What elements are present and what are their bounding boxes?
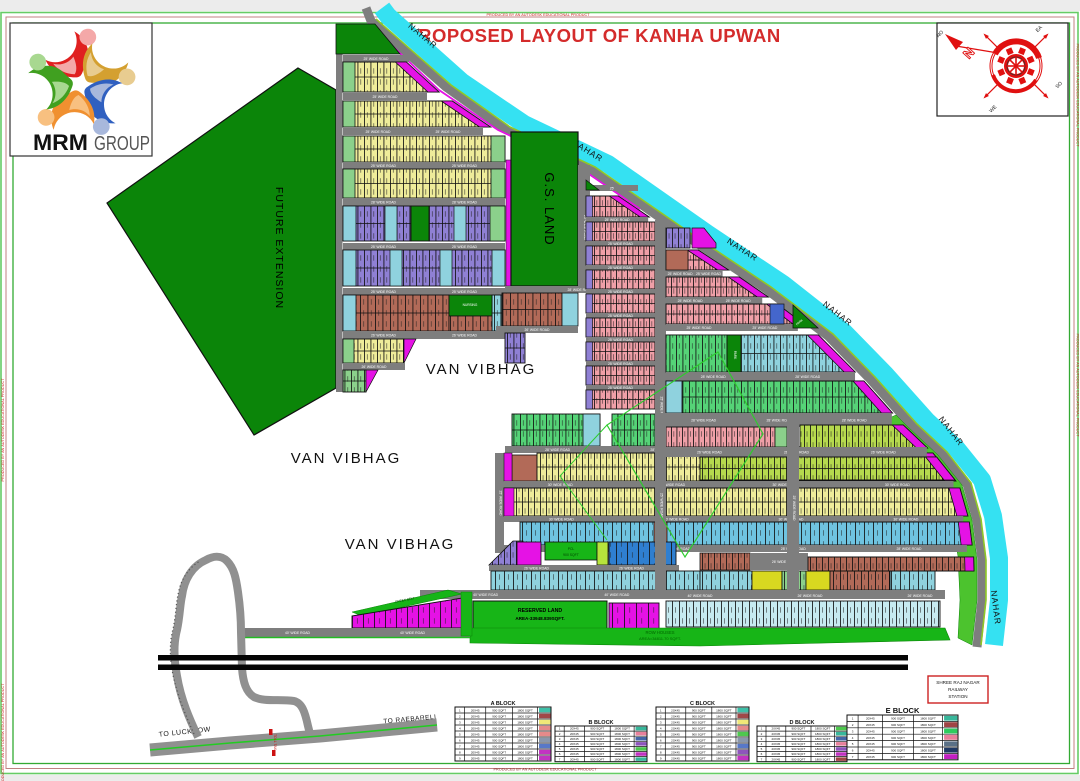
svg-text:1800 SQFT: 1800 SQFT [716, 732, 732, 736]
svg-text:26' WIDE: 26' WIDE [772, 560, 787, 564]
svg-text:VAN VIBHAG: VAN VIBHAG [291, 450, 402, 467]
svg-text:1800 SQFT: 1800 SQFT [614, 747, 630, 751]
svg-text:G.S. LAND: G.S. LAND [542, 172, 557, 245]
svg-text:900 SQFT: 900 SQFT [492, 756, 506, 760]
svg-text:PRODUCED BY AN AUTODESK EDUCAT: PRODUCED BY AN AUTODESK EDUCATIONAL PROD… [1076, 43, 1080, 147]
svg-text:20X45: 20X45 [570, 727, 579, 731]
svg-text:20X45: 20X45 [772, 732, 781, 736]
svg-text:1800 SQFT: 1800 SQFT [815, 747, 831, 751]
svg-text:1800 SQFT: 1800 SQFT [815, 757, 831, 761]
svg-text:25' WIDE ROAD: 25' WIDE ROAD [452, 245, 478, 249]
svg-text:20X45: 20X45 [866, 749, 875, 753]
svg-text:26' WIDE ROAD: 26' WIDE ROAD [371, 333, 397, 337]
svg-text:1800 SQFT: 1800 SQFT [815, 752, 831, 756]
svg-text:25' WIDE ROAD: 25' WIDE ROAD [696, 272, 722, 276]
svg-text:20X45: 20X45 [772, 727, 781, 731]
svg-text:900 SQFT: 900 SQFT [791, 747, 805, 751]
svg-text:20X45: 20X45 [570, 747, 579, 751]
svg-text:900 SQFT: 900 SQFT [791, 727, 805, 731]
svg-text:900 SQFT: 900 SQFT [590, 752, 604, 756]
svg-text:900 SQFT: 900 SQFT [590, 732, 604, 736]
svg-text:1800 SQFT: 1800 SQFT [517, 714, 533, 718]
svg-text:PRODUCED BY AN AUTODESK EDUCAT: PRODUCED BY AN AUTODESK EDUCATIONAL PROD… [1076, 333, 1080, 437]
svg-text:PARK: PARK [733, 351, 737, 360]
svg-text:20X45: 20X45 [471, 714, 480, 718]
svg-text:25' WIDE ROAD: 25' WIDE ROAD [605, 218, 631, 222]
svg-text:1800 SQFT: 1800 SQFT [614, 737, 630, 741]
svg-text:900 SQFT: 900 SQFT [891, 723, 905, 727]
svg-text:40' WIDE ROAD: 40' WIDE ROAD [688, 594, 714, 598]
svg-text:1800 SQFT: 1800 SQFT [614, 727, 630, 731]
svg-text:SHREE RAJ NAGAR: SHREE RAJ NAGAR [936, 680, 980, 685]
svg-text:E BLOCK: E BLOCK [886, 706, 920, 715]
svg-text:25' WIDE ROAD: 25' WIDE ROAD [452, 290, 478, 294]
svg-text:26' WIDE ROAD: 26' WIDE ROAD [908, 594, 934, 598]
svg-text:25' WIDE ROAD: 25' WIDE ROAD [752, 326, 778, 330]
svg-text:A BLOCK: A BLOCK [491, 701, 516, 707]
svg-text:20X45: 20X45 [671, 714, 680, 718]
svg-text:25' WIDE ROAD: 25' WIDE ROAD [608, 338, 634, 342]
svg-text:20X45: 20X45 [772, 757, 781, 761]
svg-text:20X45: 20X45 [772, 737, 781, 741]
svg-text:900 SQFT: 900 SQFT [492, 714, 506, 718]
svg-text:25' WIDE ROAD: 25' WIDE ROAD [608, 290, 634, 294]
svg-text:30' WIDE ROAD: 30' WIDE ROAD [548, 483, 574, 487]
svg-text:NURSING: NURSING [463, 303, 478, 307]
svg-text:25' WIDE ROAD: 25' WIDE ROAD [499, 491, 503, 517]
svg-text:VAN VIBHAG: VAN VIBHAG [345, 536, 456, 553]
svg-text:20X45: 20X45 [866, 723, 875, 727]
svg-text:900 SQFT: 900 SQFT [590, 737, 604, 741]
svg-text:20X45: 20X45 [772, 742, 781, 746]
svg-text:28' WIDE ROAD: 28' WIDE ROAD [842, 418, 868, 422]
svg-text:900 SQFT: 900 SQFT [590, 727, 604, 731]
svg-text:25' WIDE ROAD: 25' WIDE ROAD [436, 130, 462, 134]
svg-text:900 SQFT: 900 SQFT [692, 732, 706, 736]
svg-text:TOLL TAX: TOLL TAX [273, 734, 277, 751]
svg-text:900 SQFT: 900 SQFT [692, 744, 706, 748]
svg-text:900 SQFT: 900 SQFT [791, 737, 805, 741]
svg-text:1800 SQFT: 1800 SQFT [517, 732, 533, 736]
svg-text:1800 SQFT: 1800 SQFT [920, 717, 936, 721]
svg-text:1800 SQFT: 1800 SQFT [716, 714, 732, 718]
svg-text:1800 SQFT: 1800 SQFT [716, 750, 732, 754]
svg-text:26' WIDE ROAD: 26' WIDE ROAD [871, 450, 897, 454]
svg-text:900 SQFT: 900 SQFT [492, 744, 506, 748]
svg-text:PCL: PCL [568, 547, 575, 551]
svg-text:1800 SQFT: 1800 SQFT [716, 744, 732, 748]
svg-text:20X45: 20X45 [570, 737, 579, 741]
svg-text:900 SQFT: 900 SQFT [692, 726, 706, 730]
svg-text:25' WIDE ROAD: 25' WIDE ROAD [726, 299, 752, 303]
svg-text:20X45: 20X45 [471, 726, 480, 730]
svg-text:RESERVED LAND: RESERVED LAND [518, 608, 563, 614]
svg-text:900 SQFT: 900 SQFT [891, 742, 905, 746]
svg-text:1800 SQFT: 1800 SQFT [716, 756, 732, 760]
svg-text:ROW HOUSES: ROW HOUSES [645, 630, 674, 635]
svg-text:AREA-33948.839SQFT.: AREA-33948.839SQFT. [515, 616, 564, 621]
svg-text:D BLOCK: D BLOCK [789, 720, 814, 726]
svg-text:1800 SQFT: 1800 SQFT [517, 726, 533, 730]
svg-text:20X45: 20X45 [671, 756, 680, 760]
svg-text:900 SQFT: 900 SQFT [590, 747, 604, 751]
svg-text:20X45: 20X45 [570, 742, 579, 746]
svg-text:1800 SQFT: 1800 SQFT [815, 727, 831, 731]
svg-text:C BLOCK: C BLOCK [690, 701, 715, 707]
svg-text:900 SQFT: 900 SQFT [492, 708, 506, 712]
svg-text:PROPOSED LAYOUT OF KANHA UPWAN: PROPOSED LAYOUT OF KANHA UPWAN [405, 25, 780, 46]
svg-text:20X45: 20X45 [671, 726, 680, 730]
svg-text:PRODUCED BY AN AUTODESK EDUCAT: PRODUCED BY AN AUTODESK EDUCATIONAL PROD… [1, 683, 5, 781]
svg-text:PRODUCED BY AN AUTODESK EDUCAT: PRODUCED BY AN AUTODESK EDUCATIONAL PROD… [1, 378, 5, 482]
svg-text:28' WIDE ROAD: 28' WIDE ROAD [545, 448, 571, 452]
svg-text:900 SQFT: 900 SQFT [563, 553, 579, 557]
svg-text:25' WIDE ROAD: 25' WIDE ROAD [608, 314, 634, 318]
svg-text:25' WIDE ROAD: 25' WIDE ROAD [668, 272, 694, 276]
svg-text:1800 SQFT: 1800 SQFT [716, 708, 732, 712]
svg-text:25' WIDE ROAD: 25' WIDE ROAD [371, 245, 397, 249]
svg-text:26' WIDE ROAD: 26' WIDE ROAD [798, 594, 824, 598]
svg-text:1800 SQFT: 1800 SQFT [920, 749, 936, 753]
svg-text:900 SQFT: 900 SQFT [590, 742, 604, 746]
svg-text:900 SQFT: 900 SQFT [492, 726, 506, 730]
svg-text:1800 SQFT: 1800 SQFT [517, 708, 533, 712]
svg-text:26' WIDE ROAD: 26' WIDE ROAD [697, 450, 723, 454]
svg-text:1800 SQFT: 1800 SQFT [517, 720, 533, 724]
svg-text:25' WIDE ROAD: 25' WIDE ROAD [608, 386, 634, 390]
svg-text:FUTURE EXTENSION: FUTURE EXTENSION [273, 187, 285, 309]
svg-text:20X45: 20X45 [772, 747, 781, 751]
svg-text:900 SQFT: 900 SQFT [791, 757, 805, 761]
svg-text:1800 SQFT: 1800 SQFT [517, 756, 533, 760]
svg-text:20X45: 20X45 [471, 750, 480, 754]
svg-text:28' WIDE ROAD: 28' WIDE ROAD [691, 418, 717, 422]
svg-text:20X45: 20X45 [570, 757, 579, 761]
svg-text:RAILWAY: RAILWAY [948, 687, 968, 692]
svg-text:26' WIDE ROAD: 26' WIDE ROAD [452, 333, 478, 337]
svg-text:25' WIDE ROAD: 25' WIDE ROAD [608, 242, 634, 246]
svg-text:26' WIDE ROAD: 26' WIDE ROAD [619, 566, 645, 570]
svg-text:B BLOCK: B BLOCK [588, 720, 613, 726]
svg-text:25' WIDE ROAD: 25' WIDE ROAD [371, 164, 397, 168]
svg-text:30' WIDE ROAD: 30' WIDE ROAD [893, 517, 919, 521]
svg-text:1800 SQFT: 1800 SQFT [614, 757, 630, 761]
svg-text:28' WIDE ROAD: 28' WIDE ROAD [795, 375, 821, 379]
svg-text:25' WIDE ROAD: 25' WIDE ROAD [364, 57, 390, 61]
svg-text:900 SQFT: 900 SQFT [891, 749, 905, 753]
svg-text:20X45: 20X45 [866, 736, 875, 740]
svg-text:25' WIDE ROAD: 25' WIDE ROAD [678, 299, 704, 303]
svg-text:900 SQFT: 900 SQFT [791, 752, 805, 756]
svg-text:20X45: 20X45 [671, 708, 680, 712]
svg-text:28' WIDE ROAD: 28' WIDE ROAD [897, 547, 923, 551]
svg-text:40' WIDE ROAD: 40' WIDE ROAD [473, 593, 499, 597]
svg-text:1800 SQFT: 1800 SQFT [716, 738, 732, 742]
svg-text:1800 SQFT: 1800 SQFT [614, 742, 630, 746]
svg-text:40' WIDE ROAD: 40' WIDE ROAD [400, 631, 426, 635]
svg-text:PRODUCED BY AN AUTODESK EDUCAT: PRODUCED BY AN AUTODESK EDUCATIONAL PROD… [493, 768, 597, 772]
svg-text:25': 25' [610, 186, 615, 190]
svg-text:25' WIDE ROAD: 25' WIDE ROAD [792, 496, 796, 522]
svg-text:20X45: 20X45 [570, 752, 579, 756]
svg-text:25' WIDE ROAD: 25' WIDE ROAD [452, 164, 478, 168]
svg-text:26' WIDE ROAD: 26' WIDE ROAD [362, 365, 388, 369]
svg-text:20X45: 20X45 [570, 732, 579, 736]
svg-text:1800 SQFT: 1800 SQFT [614, 752, 630, 756]
svg-text:25' WIDE ROAD: 25' WIDE ROAD [373, 95, 399, 99]
svg-text:1800 SQFT: 1800 SQFT [716, 720, 732, 724]
svg-text:1800 SQFT: 1800 SQFT [920, 755, 936, 759]
svg-text:1800 SQFT: 1800 SQFT [614, 732, 630, 736]
svg-text:VAN VIBHAG: VAN VIBHAG [426, 361, 537, 378]
svg-text:1800 SQFT: 1800 SQFT [920, 742, 936, 746]
svg-text:20X45: 20X45 [772, 752, 781, 756]
svg-text:1800 SQFT: 1800 SQFT [920, 729, 936, 733]
svg-text:900 SQFT: 900 SQFT [692, 720, 706, 724]
svg-text:20X45: 20X45 [671, 720, 680, 724]
svg-text:900 SQFT: 900 SQFT [692, 756, 706, 760]
svg-text:900 SQFT: 900 SQFT [891, 755, 905, 759]
svg-text:20X45: 20X45 [471, 720, 480, 724]
svg-text:1800 SQFT: 1800 SQFT [517, 744, 533, 748]
svg-text:900 SQFT: 900 SQFT [492, 732, 506, 736]
svg-text:25' WIDE ROAD: 25' WIDE ROAD [371, 290, 397, 294]
svg-text:25' WIDE ROAD: 25' WIDE ROAD [608, 362, 634, 366]
svg-text:28' WIDE ROAD: 28' WIDE ROAD [371, 200, 397, 204]
svg-text:30' WIDE ROAD: 30' WIDE ROAD [885, 483, 911, 487]
svg-text:20X45: 20X45 [866, 729, 875, 733]
svg-text:20X45: 20X45 [671, 744, 680, 748]
svg-text:MRM: MRM [33, 130, 88, 155]
svg-text:PRODUCED BY AN AUTODESK EDUCAT: PRODUCED BY AN AUTODESK EDUCATIONAL PROD… [486, 13, 590, 17]
svg-text:900 SQFT: 900 SQFT [590, 757, 604, 761]
svg-text:900 SQFT: 900 SQFT [492, 750, 506, 754]
svg-text:AREA=34811.70 SQFT.: AREA=34811.70 SQFT. [639, 636, 681, 641]
svg-text:20X45: 20X45 [471, 732, 480, 736]
svg-text:900 SQFT: 900 SQFT [692, 708, 706, 712]
svg-text:1800 SQFT: 1800 SQFT [920, 723, 936, 727]
svg-text:20X45: 20X45 [471, 744, 480, 748]
svg-text:900 SQFT: 900 SQFT [692, 750, 706, 754]
svg-text:28' WIDE ROAD: 28' WIDE ROAD [701, 375, 727, 379]
svg-text:900 SQFT: 900 SQFT [492, 720, 506, 724]
svg-text:20X45: 20X45 [671, 750, 680, 754]
svg-text:900 SQFT: 900 SQFT [791, 742, 805, 746]
svg-text:1800 SQFT: 1800 SQFT [815, 737, 831, 741]
svg-text:900 SQFT: 900 SQFT [492, 738, 506, 742]
svg-text:26' WIDE ROAD: 26' WIDE ROAD [525, 328, 551, 332]
svg-text:900 SQFT: 900 SQFT [891, 729, 905, 733]
svg-text:1800 SQFT: 1800 SQFT [920, 736, 936, 740]
svg-text:1800 SQFT: 1800 SQFT [517, 750, 533, 754]
svg-text:20X45: 20X45 [671, 738, 680, 742]
svg-text:40' WIDE ROAD: 40' WIDE ROAD [285, 631, 311, 635]
svg-text:900 SQFT: 900 SQFT [891, 717, 905, 721]
svg-text:1800 SQFT: 1800 SQFT [517, 738, 533, 742]
svg-text:40' WIDE ROAD: 40' WIDE ROAD [604, 593, 630, 597]
svg-text:900 SQFT: 900 SQFT [692, 738, 706, 742]
svg-text:900 SQFT: 900 SQFT [692, 714, 706, 718]
svg-text:30' WIDE ROAD: 30' WIDE ROAD [549, 517, 575, 521]
svg-text:20X45: 20X45 [866, 742, 875, 746]
svg-text:25' WIDE ROAD: 25' WIDE ROAD [608, 266, 634, 270]
svg-text:25' WIDE ROAD: 25' WIDE ROAD [366, 130, 392, 134]
svg-text:20X45: 20X45 [471, 708, 480, 712]
svg-text:1800 SQFT: 1800 SQFT [716, 726, 732, 730]
svg-text:GROUP: GROUP [94, 133, 150, 155]
svg-text:900 SQFT: 900 SQFT [791, 732, 805, 736]
svg-text:25' WIDE ROAD: 25' WIDE ROAD [686, 326, 712, 330]
svg-text:20X45: 20X45 [671, 732, 680, 736]
svg-text:26' WIDE ROAD: 26' WIDE ROAD [524, 566, 550, 570]
svg-text:20X45: 20X45 [471, 756, 480, 760]
svg-text:1800 SQFT: 1800 SQFT [815, 732, 831, 736]
svg-text:1800 SQFT: 1800 SQFT [815, 742, 831, 746]
svg-text:STATION: STATION [948, 694, 967, 699]
svg-text:20X45: 20X45 [866, 755, 875, 759]
svg-text:900 SQFT: 900 SQFT [891, 736, 905, 740]
svg-text:30' WIDE ROAD: 30' WIDE ROAD [664, 517, 690, 521]
svg-text:20X45: 20X45 [471, 738, 480, 742]
svg-text:20X45: 20X45 [866, 717, 875, 721]
svg-text:28' WIDE ROAD: 28' WIDE ROAD [452, 200, 478, 204]
